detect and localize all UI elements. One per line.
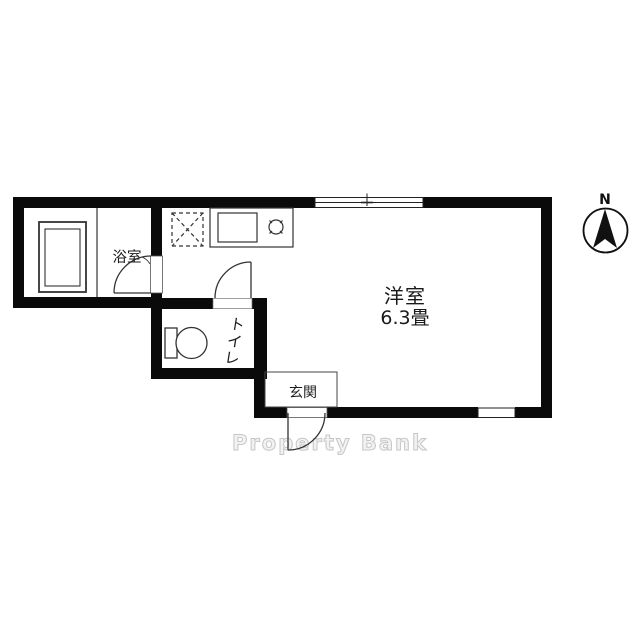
opening-entrance-door: [287, 408, 327, 418]
entrance-label: 玄関: [289, 384, 317, 401]
wall-top-right: [423, 197, 552, 208]
opening-bathroom-door: [151, 256, 163, 293]
wall-toilet-left: [151, 297, 162, 379]
wall-bottom-1: [254, 407, 287, 418]
wall-toilet-right: [254, 298, 267, 379]
window-bottom: [478, 408, 515, 418]
bathroom-label-leader: [142, 257, 150, 264]
compass: N: [584, 192, 628, 253]
wall-toilet-bottom: [151, 368, 267, 379]
wall-bathroom-right-upper: [151, 197, 162, 256]
kitchen-counter-icon: [210, 208, 293, 247]
floor-plan-drawing: Property Bank: [0, 0, 640, 640]
bathtub-icon: [39, 222, 86, 292]
door-swings: [114, 256, 325, 450]
watermark-text: Property Bank: [232, 431, 428, 455]
svg-text:レ: レ: [223, 348, 241, 368]
wall-bathroom-bottom: [13, 297, 162, 308]
compass-north-label: N: [599, 192, 611, 208]
toilet-label: ト イ レ: [223, 315, 246, 369]
toilet-icon: [165, 328, 207, 359]
wall-left: [13, 197, 24, 308]
main-room-size-label: 6.3畳: [380, 307, 429, 329]
main-room-label: 洋室: [384, 284, 426, 308]
opening-toilet-door: [213, 299, 252, 309]
window-top: [315, 194, 423, 208]
washing-machine-icon: [172, 213, 203, 246]
floor-plan-page: Property Bank: [0, 0, 640, 640]
kitchen-sink-icon: [218, 213, 257, 242]
wall-right: [541, 197, 552, 418]
wall-top-left: [13, 197, 315, 208]
wall-toilet-top-left: [162, 298, 213, 309]
wall-bottom-2: [327, 407, 478, 418]
toilet-door-icon: [215, 262, 251, 298]
bathroom-label: 浴室: [113, 249, 142, 266]
